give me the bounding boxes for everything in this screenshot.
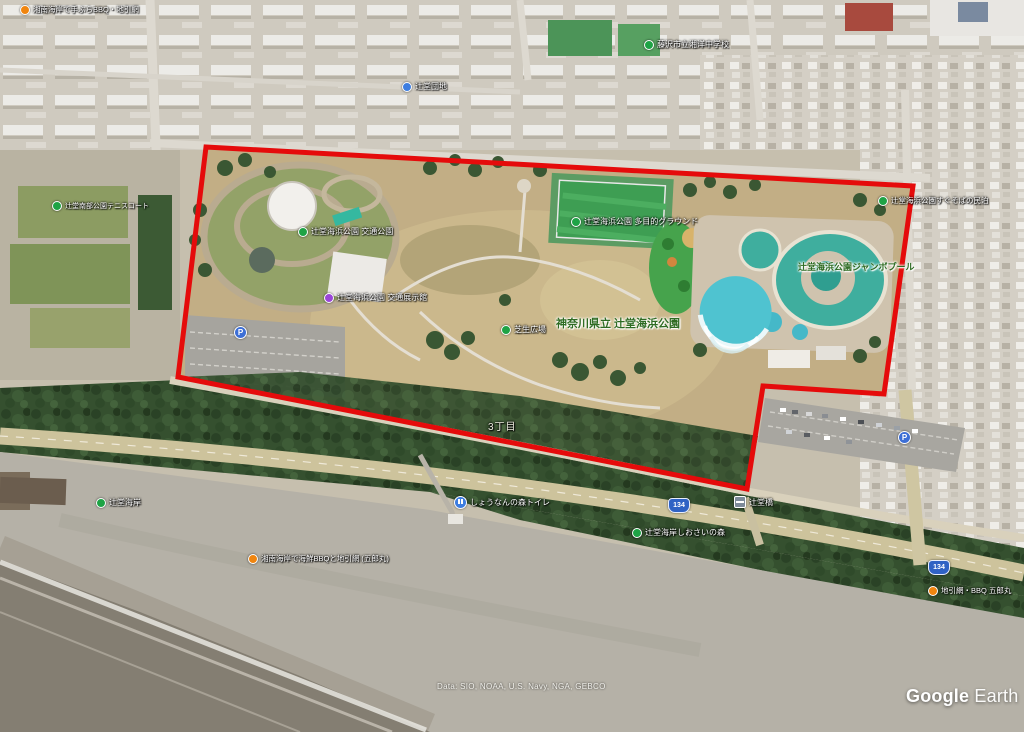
watermark-earth: Earth	[969, 686, 1018, 706]
data-attribution: Data: SIO, NOAA, U.S. Navy, NGA, GEBCO	[437, 682, 606, 691]
activity-poi-icon	[928, 586, 938, 596]
poi-label: 辻堂団地	[415, 81, 447, 92]
poi-forest-toilet[interactable]: しょうなんの森トイレ	[454, 496, 550, 509]
district-label: 3丁目	[488, 418, 517, 433]
toilet-icon	[454, 496, 467, 509]
parking-icon: P	[234, 326, 247, 339]
poi-label: 辻堂海岸	[109, 497, 141, 508]
poi-jumbo-pool[interactable]: 辻堂海浜公園ジャンボプール	[798, 260, 915, 273]
beach-toilet-building	[448, 514, 463, 524]
watermark-google: Google	[906, 686, 969, 706]
poi-label: 湘南海岸で手ぶらBBQ・地引網	[33, 4, 139, 15]
poi-label: 辻堂海浜公園 交通展示館	[337, 292, 427, 303]
poi-label: 辻堂橋	[749, 497, 773, 508]
park-poi-icon	[52, 201, 62, 211]
activity-poi-icon	[248, 554, 258, 564]
poi-bbq-topleft[interactable]: 湘南海岸で手ぶらBBQ・地引網	[20, 4, 139, 15]
poi-shiosai-forest[interactable]: 辻堂海岸しおさいの森	[632, 527, 725, 538]
poi-label: 地引網・BBQ 五郎丸	[941, 585, 1011, 596]
poi-label: 辻堂南部公園テニスコート	[65, 201, 149, 211]
poi-tsujido-bridge[interactable]: 辻堂橋	[734, 496, 773, 508]
poi-label: 辻堂海浜公園すぐそばの民泊	[891, 195, 989, 206]
poi-school[interactable]: 藤沢市立湘洋中学校	[644, 39, 729, 50]
activity-poi-icon	[20, 5, 30, 15]
parking-icon: P	[898, 431, 911, 444]
route-shield-icon: 134	[928, 560, 950, 575]
sports-poi-icon	[571, 217, 581, 227]
google-earth-viewport: { "app": { "watermark_google": "Google",…	[0, 0, 1024, 732]
poi-traffic-park[interactable]: 辻堂海浜公園 交通公園	[298, 226, 393, 237]
poi-danchi[interactable]: 辻堂団地	[402, 81, 447, 92]
poi-tsujido-coast[interactable]: 辻堂海岸	[96, 497, 141, 508]
poi-label: 辻堂海浜公園 多目的グラウンド	[584, 216, 698, 227]
poi-label: 芝生広場	[514, 324, 546, 335]
pool-name: 辻堂海浜公園ジャンボプール	[798, 260, 915, 273]
poi-label: 湘南海岸で海鮮BBQと地引網 (五郎丸)	[261, 553, 389, 564]
park-name: 神奈川県立 辻堂海浜公園	[556, 315, 680, 331]
poi-lawn-plaza[interactable]: 芝生広場	[501, 324, 546, 335]
route-shield-icon: 134	[668, 498, 690, 513]
poi-multipurpose-ground[interactable]: 辻堂海浜公園 多目的グラウンド	[571, 216, 698, 227]
west-fields	[0, 150, 180, 380]
school-poi-icon	[644, 40, 654, 50]
poi-bbq-beach[interactable]: 湘南海岸で海鮮BBQと地引網 (五郎丸)	[248, 553, 389, 564]
bridge-icon	[734, 496, 746, 508]
poi-tennis[interactable]: 辻堂南部公園テニスコート	[52, 201, 149, 211]
park-poi-icon	[501, 325, 511, 335]
park-main-label[interactable]: 神奈川県立 辻堂海浜公園	[556, 315, 680, 331]
aerial-map[interactable]	[0, 0, 1024, 732]
poi-label: 辻堂海岸しおさいの森	[645, 527, 725, 538]
poi-label: 藤沢市立湘洋中学校	[657, 39, 729, 50]
parking-icon-west[interactable]: P	[234, 326, 247, 339]
museum-poi-icon	[324, 293, 334, 303]
lodging-poi-icon	[878, 196, 888, 206]
google-earth-watermark: Google Earth	[906, 686, 1018, 707]
poi-label: 辻堂海浜公園 交通公園	[311, 226, 393, 237]
beach-poi-icon	[96, 498, 106, 508]
park-poi-icon	[298, 227, 308, 237]
place-poi-icon	[402, 82, 412, 92]
parking-icon-southeast[interactable]: P	[898, 431, 911, 444]
poi-minpaku[interactable]: 辻堂海浜公園すぐそばの民泊	[878, 195, 989, 206]
route-134-shield-east: 134	[928, 560, 950, 575]
poi-traffic-museum[interactable]: 辻堂海浜公園 交通展示館	[324, 292, 427, 303]
poi-jibiki-goromaru[interactable]: 地引網・BBQ 五郎丸	[928, 585, 1011, 596]
route-134-shield-west: 134	[668, 498, 690, 513]
poi-label: しょうなんの森トイレ	[470, 497, 550, 508]
park-poi-icon	[632, 528, 642, 538]
district-name: 3丁目	[488, 418, 517, 433]
